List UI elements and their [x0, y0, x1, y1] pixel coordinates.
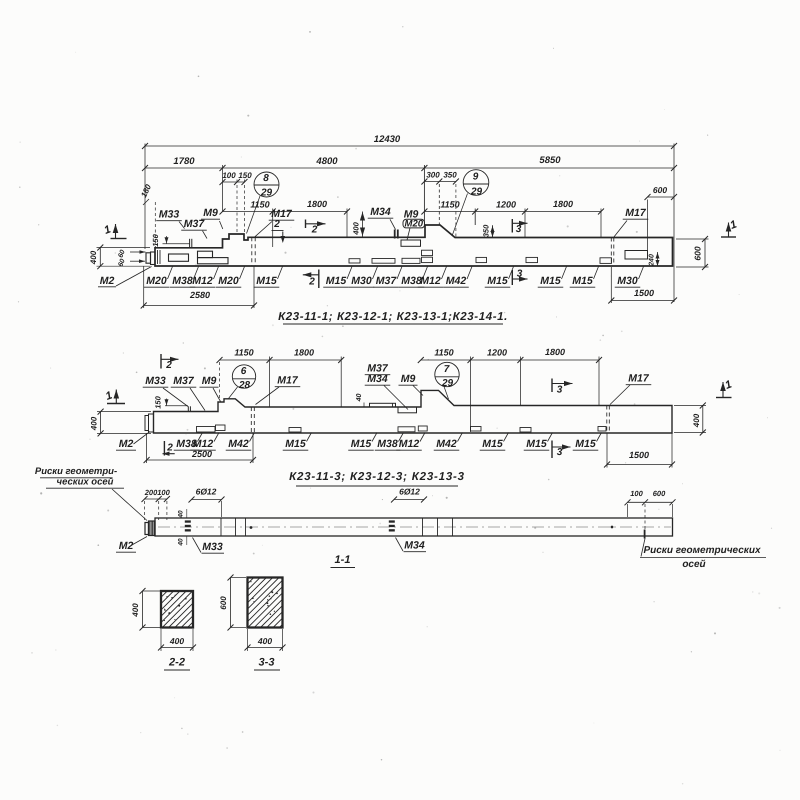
svg-text:2-2: 2-2	[168, 657, 185, 669]
svg-text:150: 150	[238, 171, 252, 180]
svg-text:М34: М34	[404, 540, 425, 552]
svg-text:1: 1	[103, 223, 113, 236]
svg-text:400: 400	[352, 221, 361, 235]
svg-text:М34: М34	[370, 206, 391, 218]
svg-text:1200: 1200	[487, 348, 507, 358]
svg-text:М2: М2	[100, 275, 115, 287]
svg-text:40: 40	[178, 538, 185, 547]
svg-text:М15: М15	[326, 275, 347, 287]
svg-text:400: 400	[89, 250, 98, 265]
svg-text:М2: М2	[119, 540, 134, 552]
svg-text:3: 3	[557, 385, 563, 396]
svg-text:7: 7	[444, 364, 450, 375]
svg-text:М37: М37	[184, 218, 206, 230]
svg-text:600: 600	[219, 596, 228, 610]
svg-text:2: 2	[165, 360, 172, 371]
svg-text:М9: М9	[401, 373, 416, 385]
svg-text:2: 2	[311, 225, 318, 236]
svg-text:М12: М12	[420, 275, 441, 287]
svg-text:2580: 2580	[189, 290, 210, 300]
svg-text:100: 100	[157, 488, 170, 497]
svg-text:М42: М42	[446, 275, 467, 287]
svg-text:1150: 1150	[234, 348, 253, 358]
svg-text:М15: М15	[526, 438, 547, 450]
svg-text:1500: 1500	[634, 288, 654, 298]
svg-text:9: 9	[473, 172, 479, 183]
svg-text:2500: 2500	[191, 449, 212, 459]
svg-text:1800: 1800	[553, 199, 573, 209]
svg-text:12430: 12430	[374, 134, 401, 145]
svg-text:М37: М37	[376, 275, 398, 287]
svg-text:1150: 1150	[250, 200, 269, 210]
svg-text:3: 3	[517, 269, 523, 280]
svg-text:100: 100	[630, 489, 643, 498]
svg-text:М15: М15	[351, 438, 372, 450]
svg-text:150: 150	[151, 233, 160, 246]
svg-text:600: 600	[693, 246, 703, 260]
svg-text:4800: 4800	[315, 156, 338, 167]
svg-text:1150: 1150	[440, 200, 459, 210]
svg-text:100: 100	[222, 171, 236, 180]
svg-text:1-1: 1-1	[335, 554, 351, 566]
svg-text:М9: М9	[203, 207, 218, 219]
svg-text:28: 28	[238, 380, 251, 391]
svg-text:5850: 5850	[539, 155, 561, 166]
svg-text:М37: М37	[173, 375, 195, 387]
svg-text:М15: М15	[540, 275, 561, 287]
svg-text:М38: М38	[172, 275, 193, 287]
svg-text:М30: М30	[351, 275, 372, 287]
svg-text:М38: М38	[377, 438, 398, 450]
svg-text:М9: М9	[202, 375, 217, 387]
svg-text:М15: М15	[575, 438, 596, 450]
svg-text:350: 350	[443, 171, 457, 180]
svg-text:М42: М42	[436, 438, 457, 450]
svg-text:М17: М17	[271, 208, 293, 220]
svg-text:6Ø12: 6Ø12	[399, 487, 420, 497]
svg-text:К23-11-3; К23-12-3; К23-13-3: К23-11-3; К23-12-3; К23-13-3	[289, 471, 465, 483]
svg-text:осей: осей	[682, 559, 705, 570]
svg-text:М33: М33	[202, 541, 223, 553]
svg-text:400: 400	[90, 416, 99, 431]
svg-text:М12: М12	[399, 438, 420, 450]
svg-text:3-3: 3-3	[259, 657, 275, 669]
svg-text:8: 8	[263, 173, 269, 184]
svg-text:600: 600	[653, 185, 667, 195]
svg-text:М15: М15	[482, 438, 503, 450]
svg-text:Риски геометрических: Риски геометрических	[643, 545, 760, 556]
svg-text:1200: 1200	[496, 200, 516, 210]
svg-text:1800: 1800	[307, 199, 327, 209]
svg-text:3: 3	[516, 224, 522, 235]
svg-text:М20: М20	[218, 275, 239, 287]
svg-text:М30: М30	[617, 275, 638, 287]
svg-text:240: 240	[649, 254, 656, 267]
svg-text:600: 600	[653, 489, 666, 498]
svg-text:60: 60	[117, 249, 126, 259]
svg-text:40: 40	[178, 510, 185, 519]
svg-text:М33: М33	[159, 209, 180, 221]
svg-text:400: 400	[692, 413, 701, 428]
svg-text:М15: М15	[487, 275, 508, 287]
svg-text:2: 2	[308, 277, 315, 288]
svg-text:29: 29	[470, 187, 483, 198]
svg-text:200: 200	[144, 488, 158, 497]
svg-text:300: 300	[426, 171, 440, 180]
svg-text:6Ø12: 6Ø12	[196, 487, 217, 497]
svg-text:М38: М38	[401, 275, 422, 287]
svg-text:29: 29	[260, 188, 273, 199]
svg-text:1150: 1150	[434, 348, 453, 358]
svg-text:400: 400	[169, 636, 184, 646]
svg-text:40: 40	[356, 394, 363, 403]
svg-text:М15: М15	[256, 275, 277, 287]
svg-text:1800: 1800	[545, 347, 565, 357]
svg-text:М15: М15	[572, 275, 593, 287]
svg-text:1500: 1500	[629, 450, 649, 460]
svg-text:М20: М20	[405, 218, 424, 229]
svg-text:М17: М17	[625, 207, 647, 219]
svg-text:29: 29	[441, 378, 454, 389]
svg-text:М42: М42	[228, 438, 249, 450]
svg-text:Риски геометри-: Риски геометри-	[35, 466, 117, 477]
svg-text:М12: М12	[192, 275, 213, 287]
svg-text:М34: М34	[367, 373, 388, 385]
svg-text:180: 180	[139, 182, 153, 198]
svg-text:К23-11-1; К23-12-1; К23-13-1;К: К23-11-1; К23-12-1; К23-13-1;К23-14-1.	[278, 311, 508, 323]
svg-text:2: 2	[166, 443, 173, 454]
svg-text:М17: М17	[277, 375, 299, 387]
svg-text:6: 6	[241, 366, 247, 377]
svg-text:400: 400	[257, 636, 272, 646]
svg-text:1800: 1800	[294, 348, 314, 358]
svg-text:М2: М2	[119, 438, 134, 450]
svg-text:М33: М33	[145, 375, 166, 387]
svg-text:ческих осей: ческих осей	[57, 477, 114, 488]
svg-text:1780: 1780	[173, 156, 195, 167]
svg-text:М20: М20	[146, 275, 167, 287]
svg-text:3: 3	[557, 447, 563, 458]
svg-text:М15: М15	[285, 438, 306, 450]
svg-text:М17: М17	[628, 373, 650, 385]
svg-text:1: 1	[104, 389, 114, 402]
svg-text:150: 150	[154, 395, 163, 408]
svg-text:400: 400	[131, 603, 140, 618]
svg-text:350: 350	[482, 224, 491, 237]
